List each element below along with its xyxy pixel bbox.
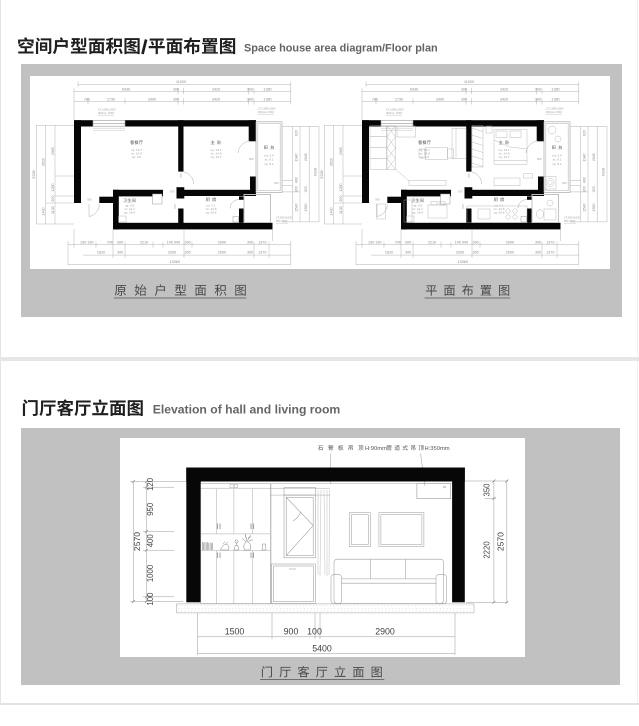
svg-text:100: 100 bbox=[146, 592, 155, 606]
svg-text:2900: 2900 bbox=[375, 627, 395, 637]
svg-text:Space house area diagram/Floor: Space house area diagram/Floor plan bbox=[244, 43, 438, 55]
svg-text:1500: 1500 bbox=[225, 627, 245, 637]
svg-text:Elevation of hall and living r: Elevation of hall and living room bbox=[153, 403, 341, 417]
svg-text:900: 900 bbox=[284, 627, 299, 637]
svg-text:2570: 2570 bbox=[132, 532, 142, 551]
svg-text:400: 400 bbox=[146, 534, 155, 548]
svg-text:2220: 2220 bbox=[483, 541, 492, 559]
svg-text:H:350mm: H:350mm bbox=[425, 446, 450, 452]
svg-text:950: 950 bbox=[146, 502, 155, 516]
svg-text:2570: 2570 bbox=[495, 532, 505, 551]
svg-text:350: 350 bbox=[483, 483, 492, 497]
svg-text:5400: 5400 bbox=[312, 644, 332, 654]
svg-text:100: 100 bbox=[307, 627, 322, 637]
svg-text:120: 120 bbox=[146, 477, 155, 491]
svg-text:1000: 1000 bbox=[146, 564, 155, 582]
svg-text:H:90mm: H:90mm bbox=[365, 446, 387, 452]
